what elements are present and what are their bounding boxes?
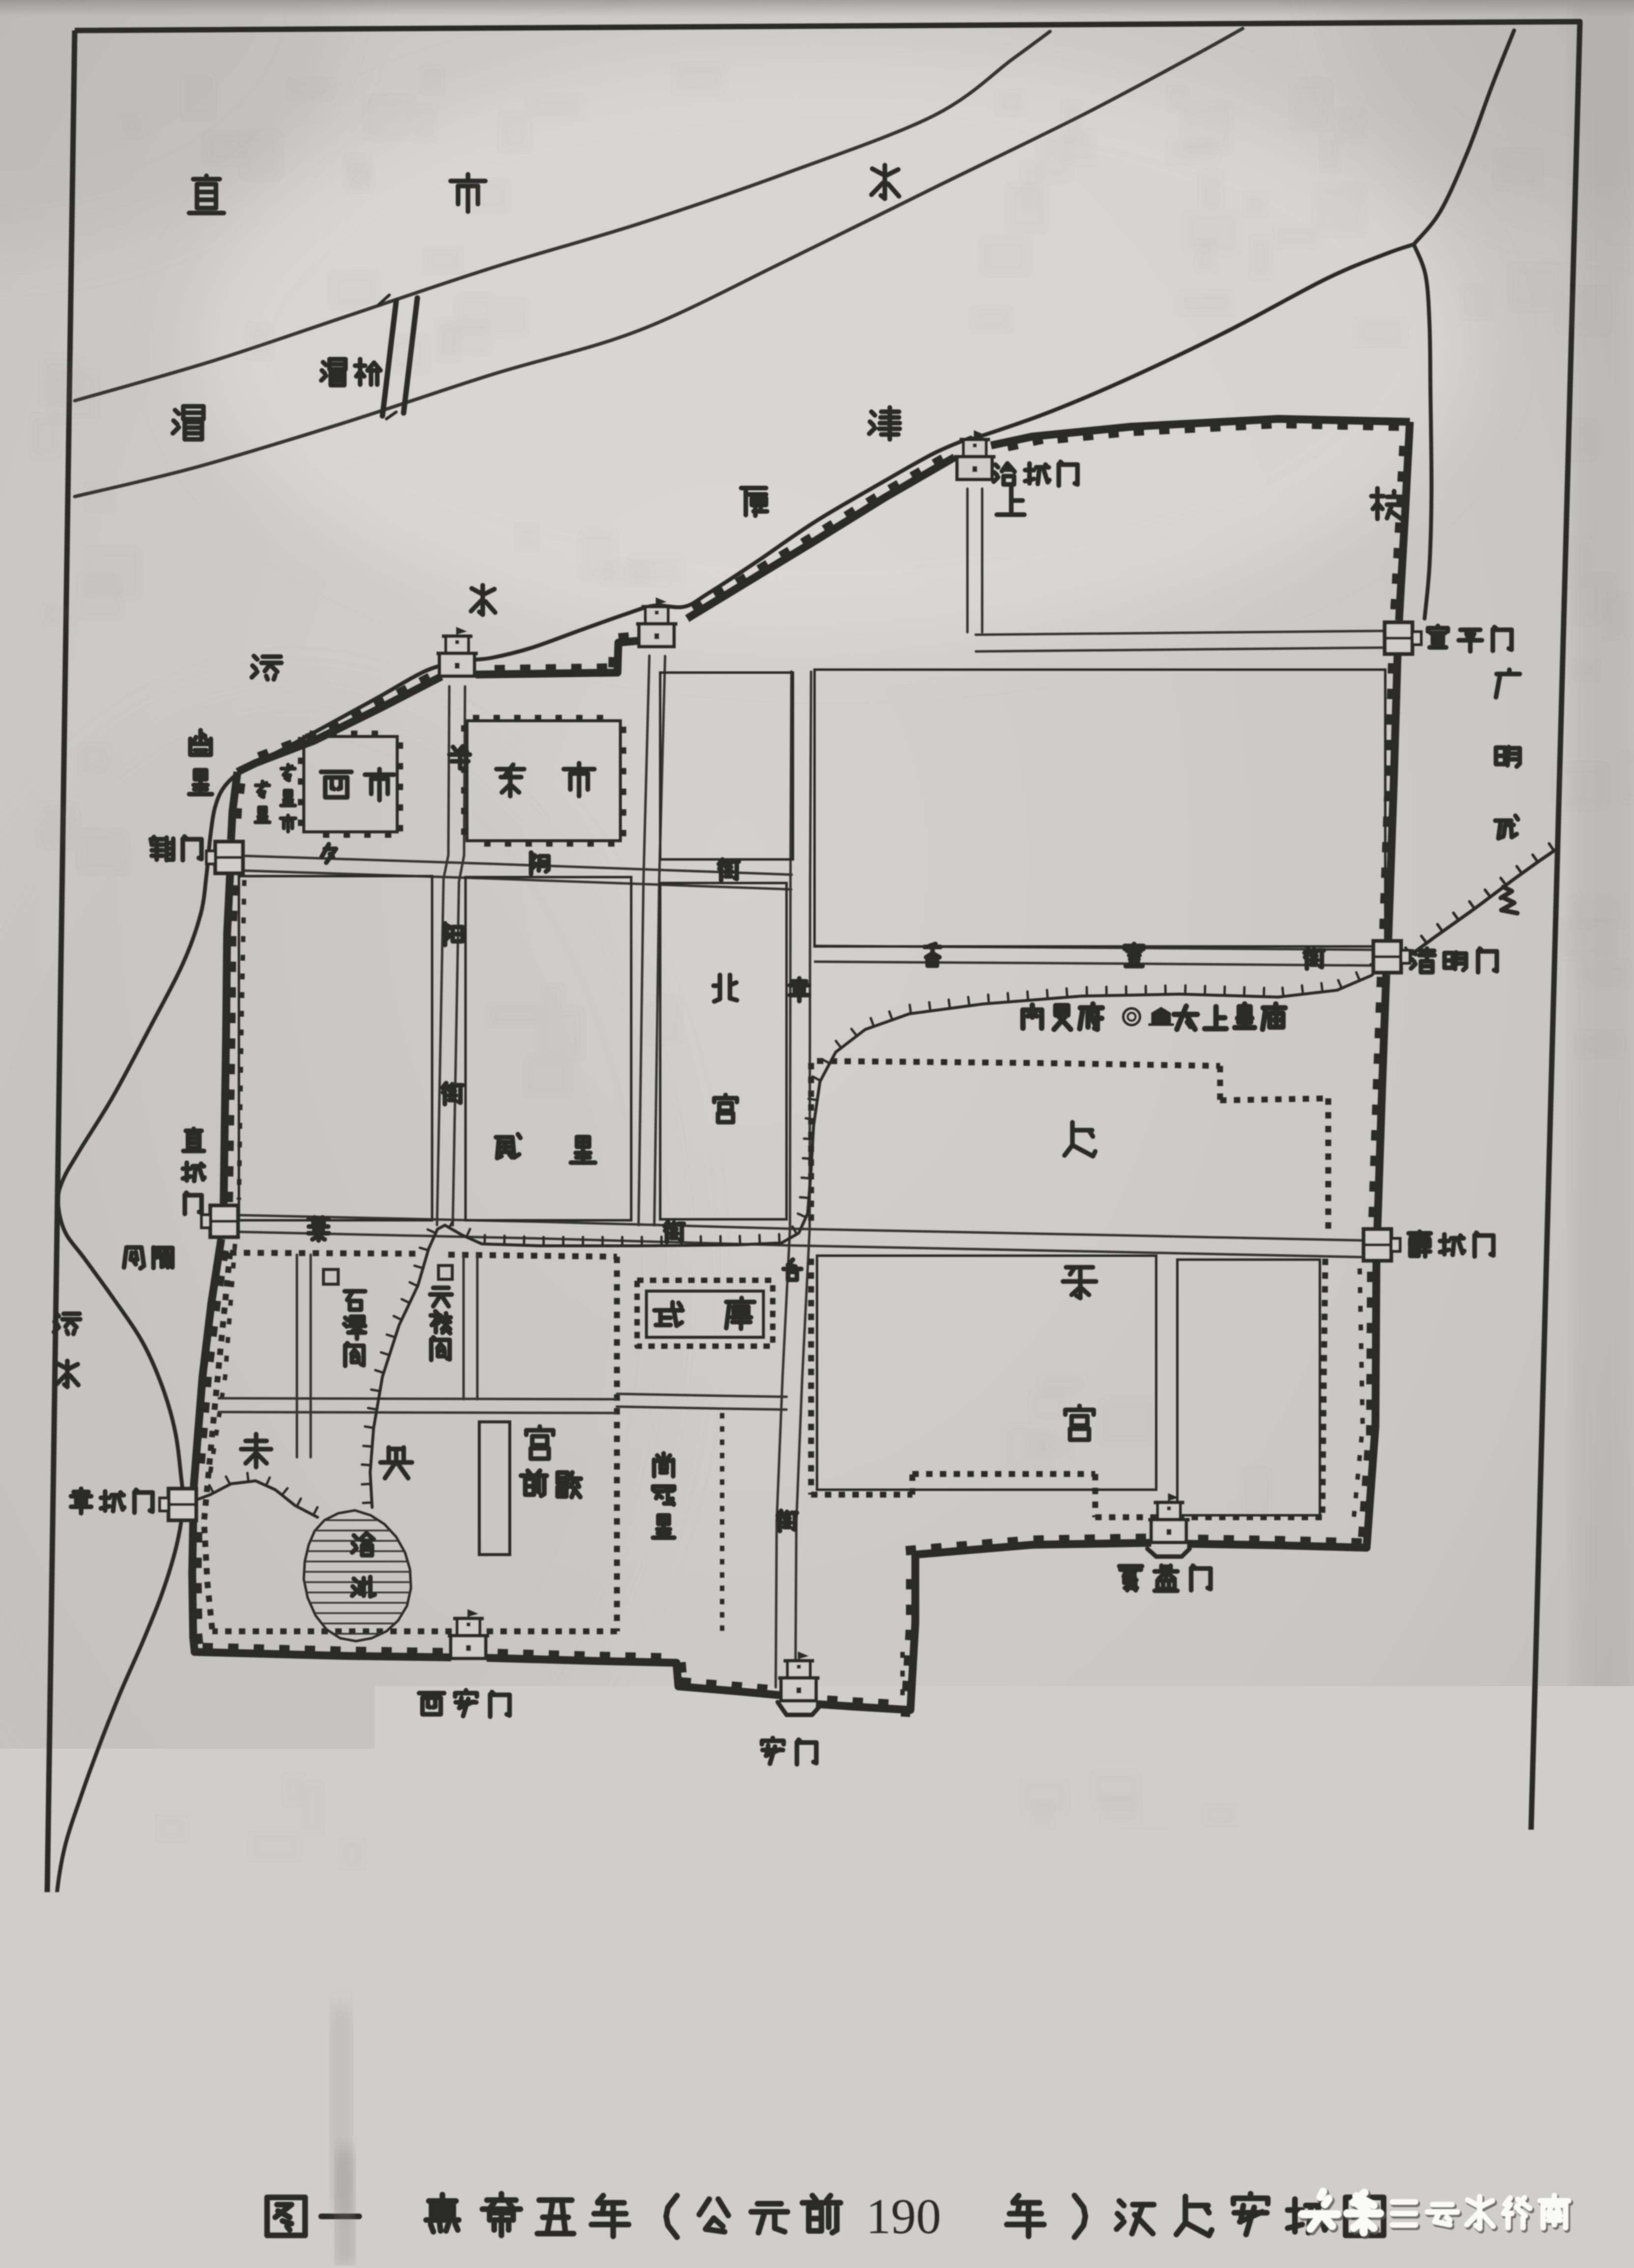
svg-text:1000: 1000 [1200, 2075, 1277, 2118]
svg-text:0: 0 [1048, 2075, 1067, 2118]
svg-text:2000: 2000 [1351, 2075, 1428, 2118]
svg-text:190: 190 [866, 2189, 941, 2244]
